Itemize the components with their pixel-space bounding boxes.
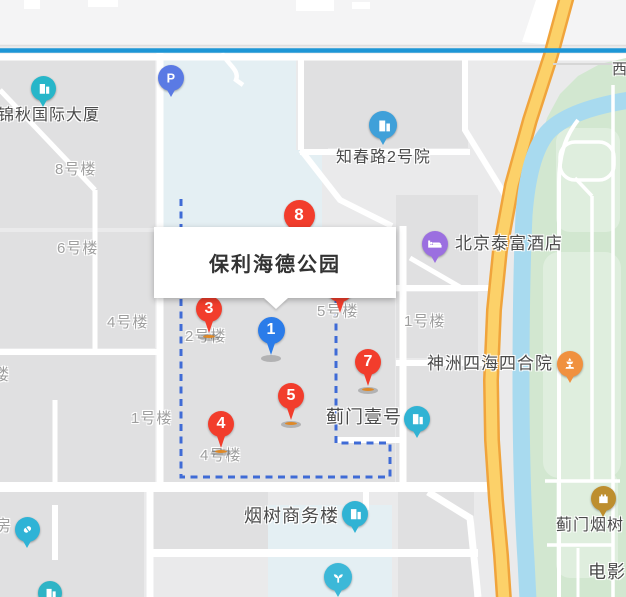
label-dianying[interactable]: 电影 — [588, 563, 626, 583]
marker-1-shadow — [261, 355, 281, 362]
label-1haolou-west: 1号楼 — [131, 411, 172, 428]
sprout-icon — [324, 563, 352, 591]
marker-zhichun-building-tail — [378, 136, 388, 145]
info-card-pointer — [264, 298, 288, 309]
marker-pharmacy-tail — [22, 539, 32, 548]
label-jimen-yanshu[interactable]: 蓟门烟树 — [556, 517, 624, 535]
map-viewport[interactable]: 8号楼6号楼4号楼楼1号楼2号楼5号楼4号楼1号楼房锦秋国际大厦知春路2号院北京… — [0, 0, 626, 597]
label-jinqiu-tower[interactable]: 锦秋国际大厦 — [0, 107, 100, 125]
label-fang-partial: 房 — [0, 518, 12, 536]
label-xi-road[interactable]: 西 — [612, 62, 626, 79]
marker-7-tail — [363, 371, 373, 386]
label-lou-partial: 楼 — [0, 367, 10, 385]
marker-7-shadow-streak — [362, 388, 374, 391]
label-6haolou: 6号楼 — [57, 241, 98, 258]
svg-text:P: P — [167, 72, 175, 86]
marker-3-tail — [204, 318, 214, 333]
label-4haolou-west: 4号楼 — [107, 315, 148, 332]
marker-5-shadow-streak — [285, 422, 297, 425]
top-strip — [0, 0, 626, 46]
marker-5-tail — [286, 405, 296, 420]
marker-4-shadow-streak — [215, 450, 227, 453]
label-1haolou-east: 1号楼 — [404, 314, 445, 331]
marker-3-shadow-streak — [203, 335, 215, 338]
marker-restaurant-tail — [333, 588, 343, 597]
marker-parking-tail — [166, 88, 176, 97]
marker-yanshu-plaza-tail — [350, 524, 360, 533]
marker-jimen-yanshu-tail — [598, 508, 608, 517]
label-yanshu-plaza[interactable]: 烟树商务楼 — [244, 507, 339, 527]
label-jimen-yihao[interactable]: 蓟门壹号 — [326, 408, 402, 428]
marker-jinqiu-building-tail — [38, 98, 48, 107]
marker-shenzhou-tail — [565, 374, 575, 383]
label-shenzhou-sihai[interactable]: 神洲四海四合院 — [427, 355, 553, 374]
marker-1-tail — [266, 340, 276, 355]
label-taifu-hotel[interactable]: 北京泰富酒店 — [455, 235, 563, 254]
marker-taifu-hotel-tail — [430, 254, 440, 263]
marker-jimen-yihao-tail — [412, 429, 422, 438]
info-card[interactable]: 保利海德公园 — [154, 227, 396, 298]
building-icon — [369, 111, 397, 139]
marker-2-tail — [335, 298, 345, 313]
info-card-title: 保利海德公园 — [209, 248, 341, 277]
label-8haolou: 8号楼 — [55, 162, 96, 179]
label-zhichunlu-2[interactable]: 知春路2号院 — [336, 149, 431, 167]
marker-4-tail — [216, 433, 226, 448]
